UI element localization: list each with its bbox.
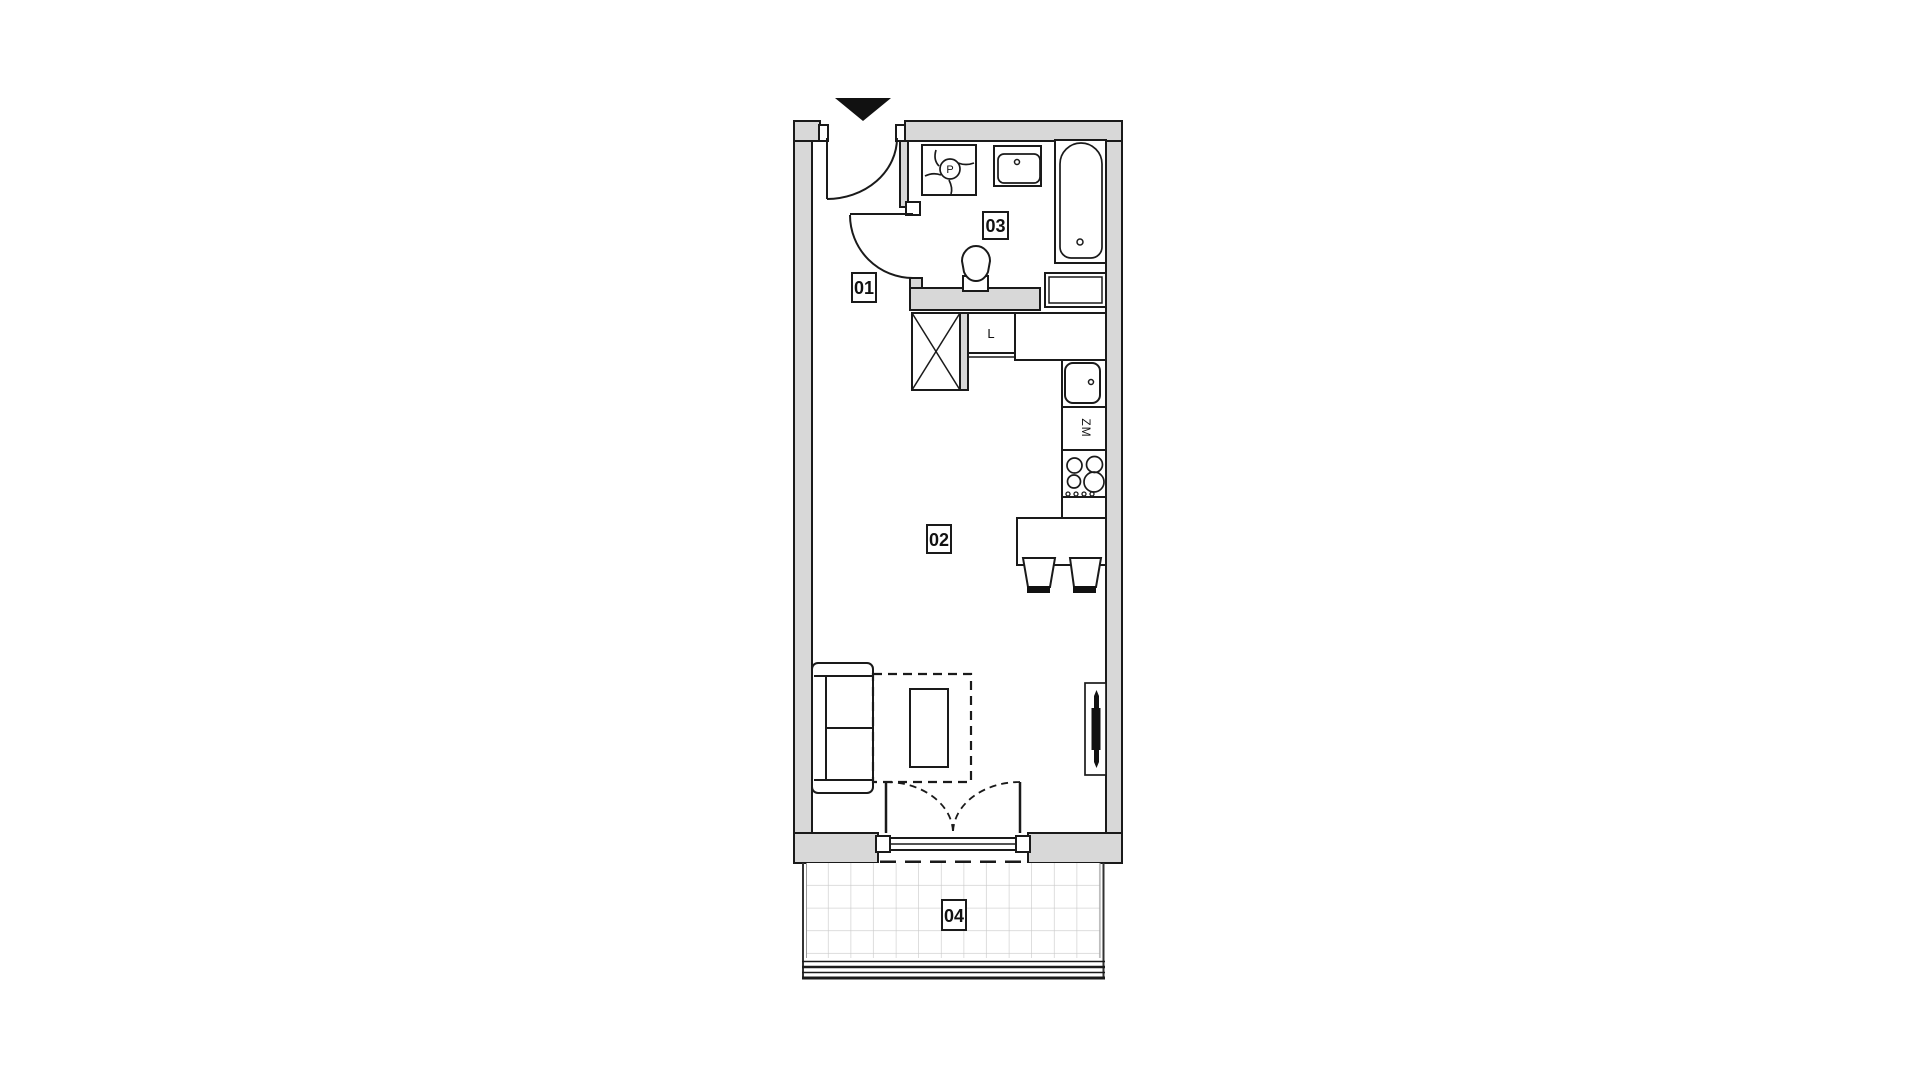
room-label-02: 02 <box>927 525 951 553</box>
room-label-01-text: 01 <box>854 278 874 298</box>
entrance-arrow-icon <box>835 98 891 121</box>
washing-machine-label: P <box>946 164 953 176</box>
toilet <box>962 246 990 291</box>
balcony-door-swing-right <box>953 782 1020 833</box>
dishwasher: ZM <box>1079 418 1093 437</box>
bathroom-door-swing <box>850 215 913 278</box>
floor-plan-canvas: P L ZM <box>0 0 1920 1080</box>
radiator-body <box>1092 708 1101 750</box>
wall-left <box>794 121 812 863</box>
chair <box>1023 558 1055 593</box>
wall-shaft-fin <box>960 313 968 390</box>
room-label-01: 01 <box>852 273 876 302</box>
chair-back <box>1027 586 1050 593</box>
coffee-table <box>910 689 948 767</box>
kitchen-counter-top <box>1015 313 1106 360</box>
toilet-bowl <box>962 246 990 281</box>
room-label-04: 04 <box>942 900 966 930</box>
shaft <box>912 313 960 390</box>
chair <box>1070 558 1101 593</box>
dishwasher-label: ZM <box>1079 418 1093 437</box>
balcony-door-swing-left <box>886 782 953 833</box>
wall-top-left-stub <box>794 121 820 141</box>
room-label-02-text: 02 <box>929 530 949 550</box>
bathroom-sink <box>994 146 1041 186</box>
kitchen-counter-end <box>1062 497 1106 518</box>
wall-hall-bath <box>900 141 908 207</box>
kitchen-sink <box>1065 363 1100 403</box>
bathroom-sink-drain <box>1015 160 1020 165</box>
bathroom-door <box>850 214 913 278</box>
wall-right <box>1106 121 1122 863</box>
room-label-03-text: 03 <box>985 216 1005 236</box>
fridge: L <box>968 313 1015 357</box>
wall-bottom-right <box>1028 833 1122 863</box>
balcony-door-frame-cap <box>876 836 890 852</box>
wall-top-right <box>905 121 1122 141</box>
bathtub <box>1055 140 1106 263</box>
fridge-label: L <box>987 326 994 341</box>
washing-machine: P <box>922 145 976 195</box>
entrance-door <box>827 138 897 199</box>
sofa <box>812 663 873 793</box>
room-label-03: 03 <box>983 212 1008 239</box>
balcony-door-frame-cap <box>1016 836 1030 852</box>
bathtub-drain <box>1077 239 1083 245</box>
balcony-railing <box>802 962 1105 979</box>
bathroom-cabinet <box>1045 273 1106 307</box>
entrance-door-swing <box>827 138 897 199</box>
balcony-door <box>876 782 1030 862</box>
radiator <box>1085 683 1106 775</box>
wall-bottom-left <box>794 833 878 863</box>
kitchen-counter <box>1015 313 1106 518</box>
chair-back <box>1073 586 1096 593</box>
kitchen-sink-drain <box>1089 380 1094 385</box>
room-label-04-text: 04 <box>944 906 964 926</box>
